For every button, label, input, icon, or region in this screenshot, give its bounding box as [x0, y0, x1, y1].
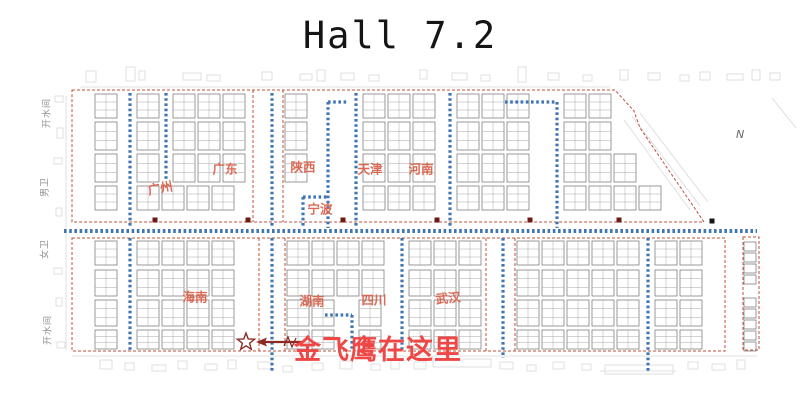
decor-mark [56, 208, 62, 216]
decor-mark [620, 70, 628, 80]
facility-label-hot-water-bottom: 开水间 [41, 315, 54, 345]
decor-mark [518, 67, 526, 82]
decor-mark [583, 75, 592, 81]
region-label-henan: 河南 [408, 159, 433, 178]
decor-mark [125, 363, 134, 370]
decor-mark [527, 365, 536, 371]
decor-mark [262, 72, 272, 80]
decor-mark [737, 360, 745, 369]
pillar [341, 218, 346, 223]
decor-mark [605, 365, 673, 374]
booth [744, 264, 756, 273]
pillar [710, 219, 715, 224]
region-label-tianjin: 天津 [357, 159, 382, 178]
decor-mark [341, 73, 354, 80]
booth [744, 331, 756, 340]
decor-mark [680, 75, 689, 81]
decor-mark [178, 361, 187, 369]
booth [744, 253, 756, 262]
decor-mark [54, 158, 62, 164]
compass-north-label: N [736, 128, 744, 141]
decor-mark [205, 364, 217, 370]
booth [744, 298, 756, 307]
decor-mark [56, 298, 62, 306]
pillar [435, 218, 440, 223]
decor-mark [727, 74, 743, 80]
facility-label-hot-water-top: 开水间 [40, 98, 53, 128]
decor-mark [648, 73, 660, 80]
decor-mark [700, 72, 710, 80]
decor-mark [481, 75, 490, 81]
region-label-hunan: 湖南 [299, 291, 324, 310]
decor-mark [86, 71, 96, 82]
annotation-text: 金飞鹰在这里 [294, 328, 462, 367]
booth [744, 275, 756, 284]
decor-mark [553, 362, 564, 369]
decor-mark [317, 70, 325, 81]
pillar [246, 218, 251, 223]
decor-mark [712, 364, 725, 370]
decor-line [772, 98, 796, 128]
decor-mark [300, 74, 312, 80]
decor-mark [139, 71, 145, 80]
booth [744, 320, 756, 329]
decor-mark [57, 342, 65, 348]
facility-label-womens-room: 女卫 [38, 239, 51, 259]
decor-mark [126, 67, 135, 81]
decor-mark [548, 73, 559, 80]
decor-mark [770, 73, 780, 80]
region-label-hainan: 海南 [182, 287, 207, 306]
booth [744, 309, 756, 318]
star-icon [237, 333, 254, 349]
region-label-wuhan: 武汉 [435, 286, 462, 308]
decor-mark [258, 362, 271, 369]
decor-mark [100, 360, 112, 369]
booth [744, 242, 756, 251]
facility-label-mens-room: 男卫 [38, 177, 51, 197]
decor-mark [500, 362, 513, 369]
decor-mark [369, 75, 379, 81]
decor-mark [207, 75, 220, 81]
pillar [617, 218, 622, 223]
decor-mark [582, 364, 591, 370]
decor-mark [452, 73, 467, 80]
decor-mark [228, 360, 236, 369]
pillar [153, 218, 158, 223]
decor-mark [54, 268, 62, 274]
decor-mark [55, 96, 63, 102]
pillar [528, 218, 533, 223]
region-label-sichuan: 四川 [361, 290, 386, 309]
decor-mark [688, 362, 698, 369]
decor-mark [183, 73, 201, 80]
decor-mark [152, 365, 166, 371]
region-label-ningbo: 宁波 [307, 199, 332, 218]
decor-mark [283, 366, 292, 372]
region-label-shaanxi: 陕西 [290, 157, 315, 176]
region-label-guangdong: 广东 [212, 159, 237, 178]
decor-mark [57, 128, 63, 138]
decor-mark [420, 70, 427, 79]
decor-mark [752, 70, 760, 80]
hall-floorplan-page: Hall 7.2 广州 广东 陕西 天津 河南 宁波 海南 湖南 四川 武汉 开… [0, 0, 800, 411]
